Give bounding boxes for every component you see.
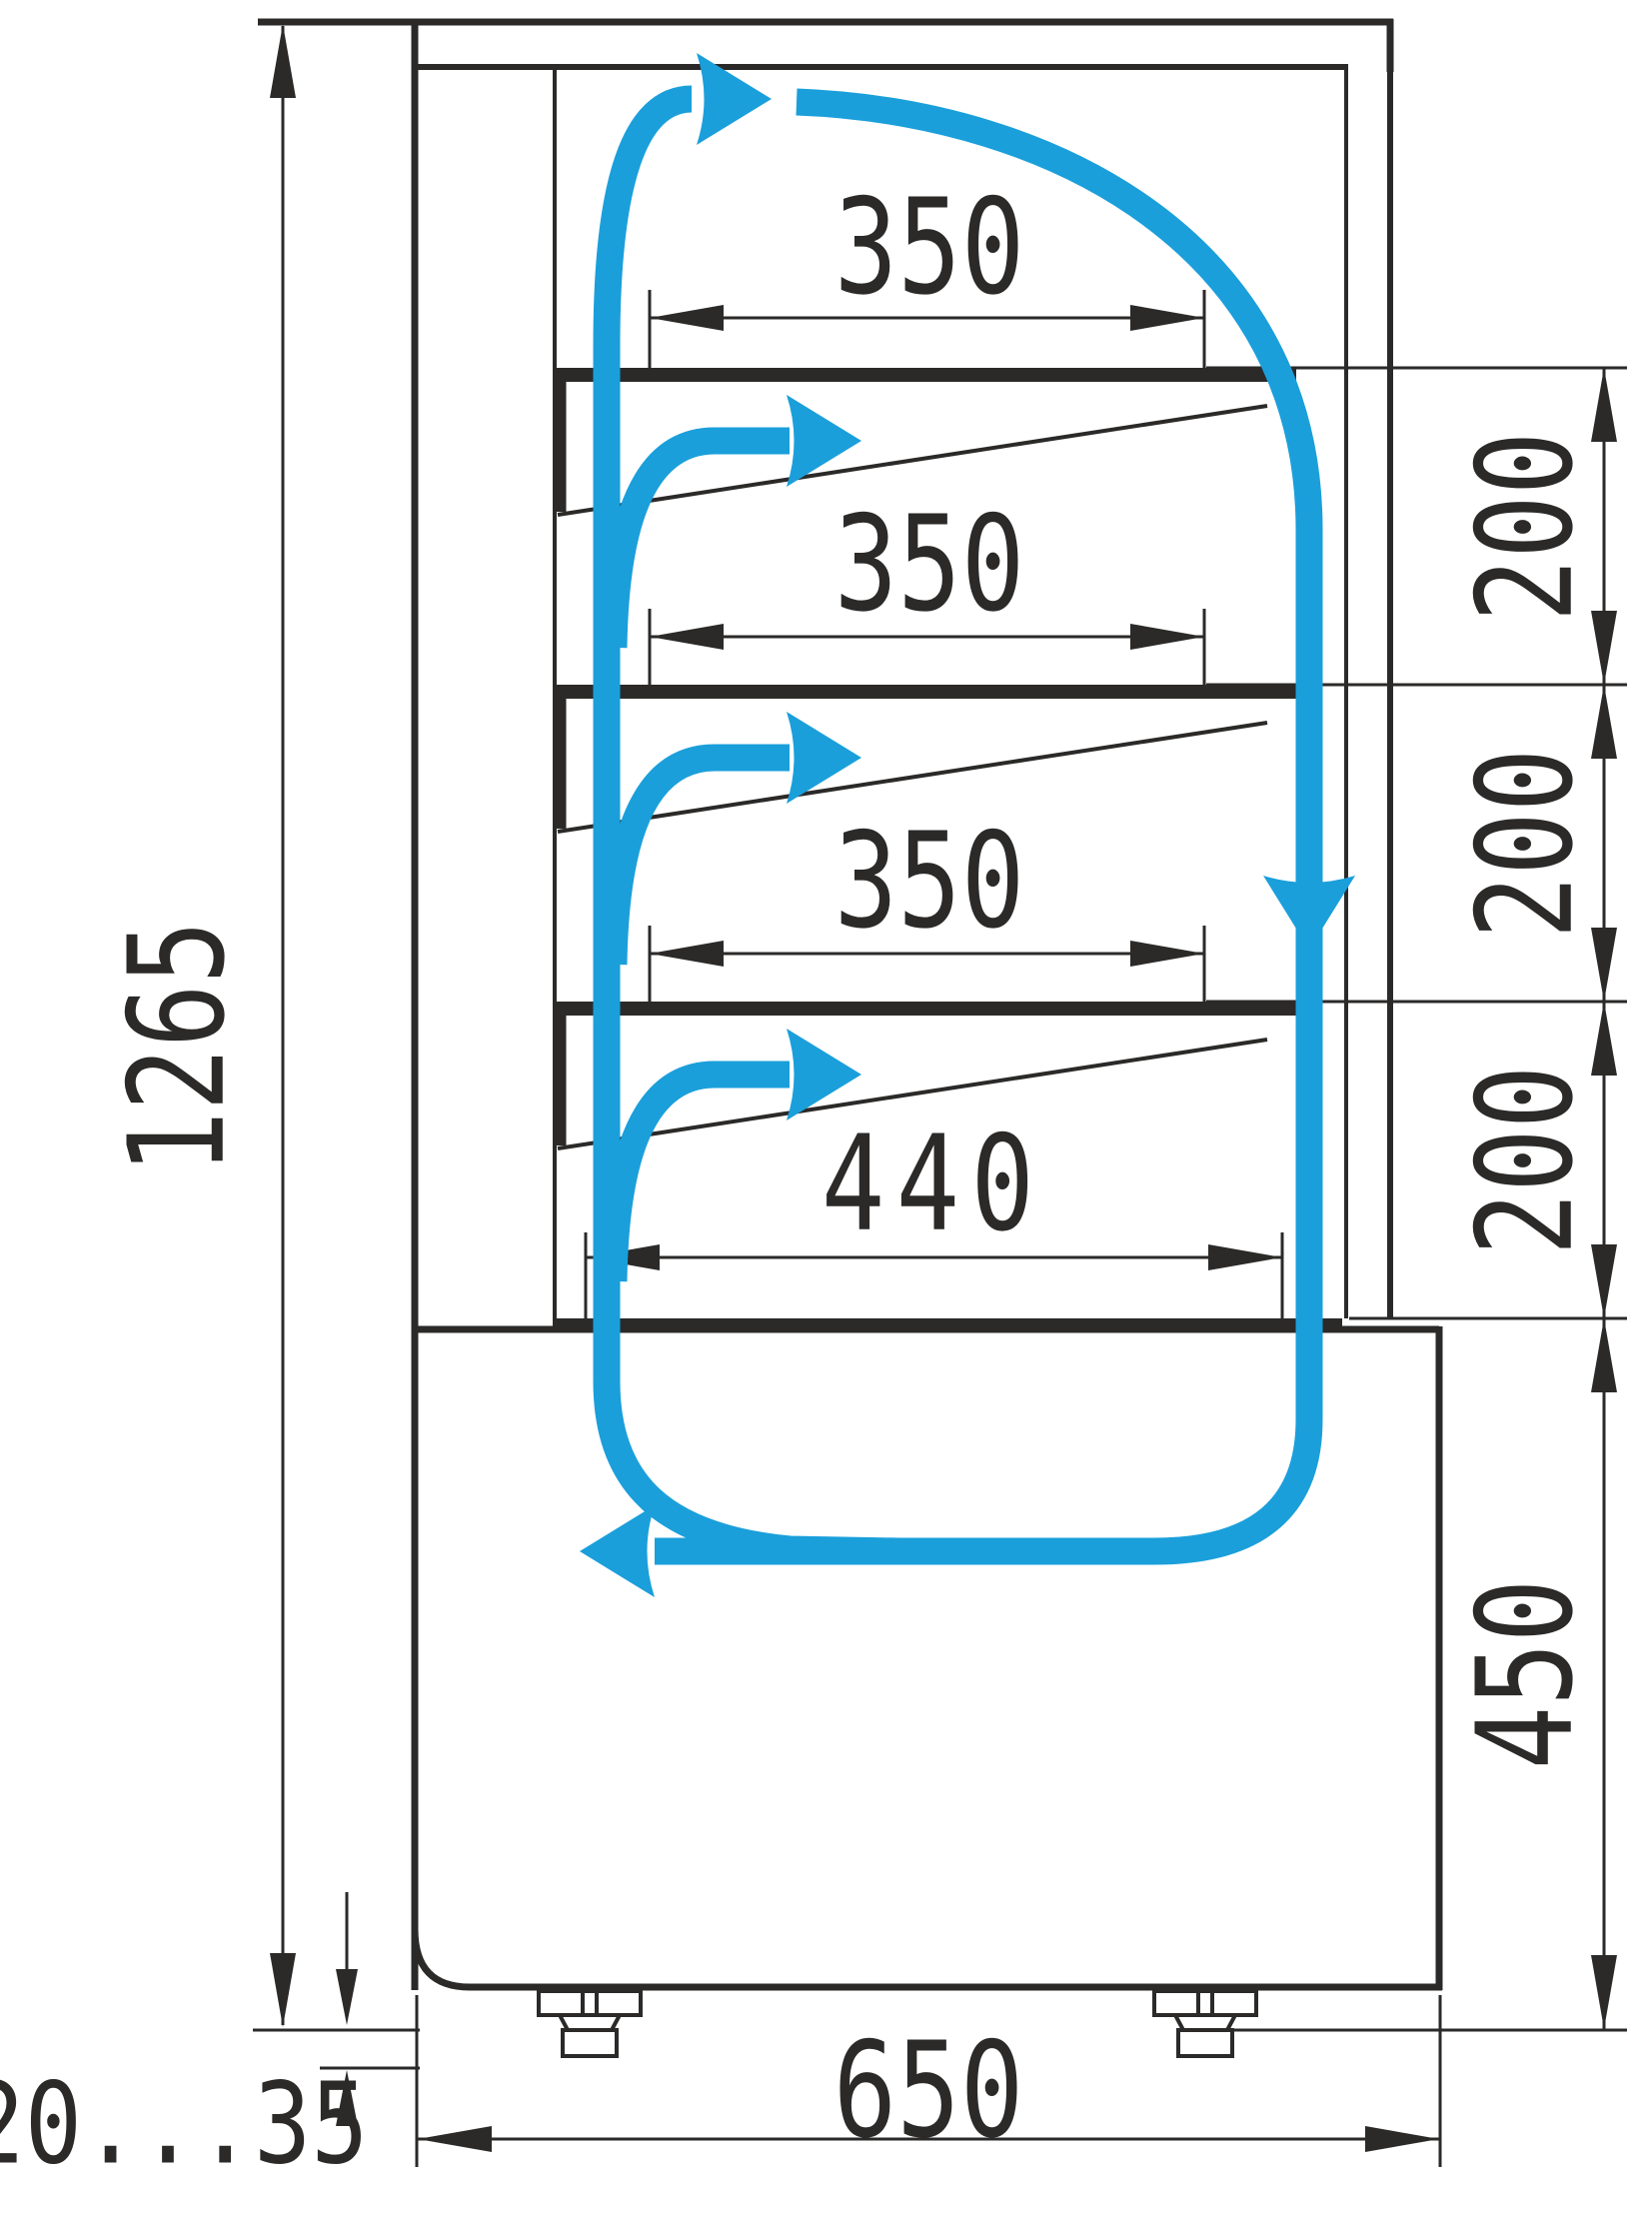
airflow-return-bend: [607, 1381, 899, 1551]
dim-deck-width-label: 440: [822, 1107, 1045, 1260]
dim-gap3-label: 200: [1449, 1066, 1602, 1256]
dim-leg-range-label: 20...35: [0, 2059, 369, 2189]
dim-total-height-label: 1265: [101, 921, 254, 1174]
dim-gap1-label: 200: [1449, 432, 1602, 623]
dim-depth-label: 650: [833, 2014, 1024, 2167]
dim-shelf2-width-label: 350: [834, 488, 1025, 641]
leg-right: [1154, 1991, 1256, 2056]
airflow-branch-1: [614, 441, 790, 648]
dim-gap2-label: 200: [1449, 749, 1602, 940]
dim-base-height-label: 450: [1449, 1579, 1602, 1770]
drawing-canvas: 1265 350 350 350 440 200 200 200 450 650…: [0, 0, 1652, 2214]
dimension-lines: [253, 26, 1627, 2167]
base-bottom: [415, 1929, 1442, 1987]
dim-shelf3-width-label: 350: [834, 805, 1025, 958]
technical-drawing: 1265 350 350 350 440 200 200 200 450 650…: [0, 0, 1652, 2214]
airflow-arrow-bottom: [580, 1505, 655, 1597]
airflow-arrow-down: [1263, 876, 1355, 950]
leg-left: [539, 1991, 641, 2056]
dim-shelf1-width-label: 350: [834, 171, 1025, 324]
airflow-branch-2: [614, 758, 790, 965]
